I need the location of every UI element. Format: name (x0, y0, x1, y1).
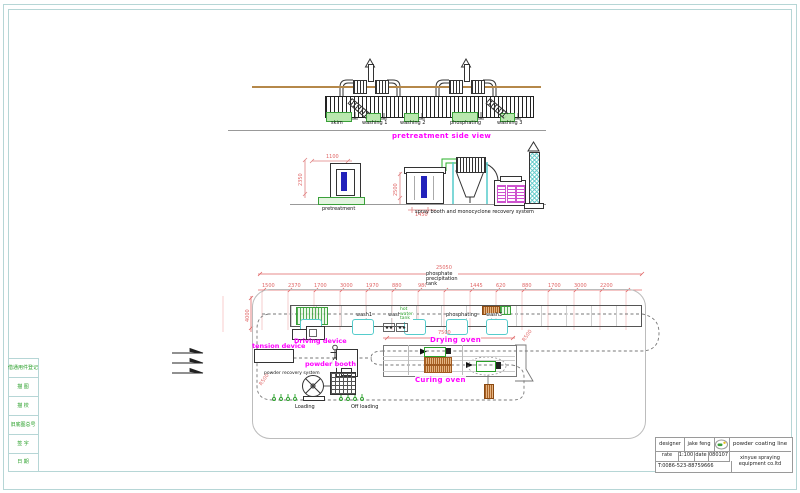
dim-text: 1445 (470, 284, 483, 289)
oven-heater-element (424, 365, 452, 373)
project-name-cell: powder coating line (729, 438, 791, 452)
exhaust-fan-box (449, 80, 463, 94)
pretreatment-blue-element (341, 172, 347, 191)
tank-label: washing 2 (400, 121, 425, 126)
burner-unit (476, 361, 496, 372)
booth-inner-line (414, 176, 415, 200)
tank-label: washing 3 (497, 121, 522, 126)
tank-label: skim (331, 121, 343, 126)
station-label: wash1 (356, 313, 372, 318)
company-cell: xinyue spraying equipment co.ltd (729, 451, 791, 472)
burner-end-cap (496, 362, 501, 369)
left-title-strip: 借通用件登记 描 图 描 校 旧底图总号 签 字 日 期 (8, 358, 39, 471)
dim-text: 2500 (394, 183, 399, 196)
phone-cell: T:0086-523-88759666 (656, 461, 732, 472)
station-label: phosphating (446, 313, 477, 318)
dim-text: 2200 (600, 284, 613, 289)
elevator-column (529, 152, 540, 208)
plan-tank (486, 319, 508, 335)
designer-label-cell: designer (656, 438, 685, 452)
strip-label: 描 校 (17, 404, 29, 409)
powder-recovery-label: powder recovery system (264, 371, 320, 376)
off-loading-label: Off loading (351, 405, 378, 410)
strip-label: 旧底图总号 (10, 423, 35, 428)
strip-label: 日 期 (17, 460, 29, 465)
left-dim-text: 4000 (246, 309, 251, 322)
side-view-title: pretreatment side view (392, 132, 491, 140)
exhaust-stack-pipe (464, 64, 470, 82)
oven-duct-stub (484, 384, 494, 399)
fan-base (303, 396, 325, 401)
strip-row: 日 期 (8, 454, 38, 471)
note-line: tank (426, 282, 458, 287)
loading-label: Loading (295, 405, 315, 410)
dim-text: 1500 (262, 284, 275, 289)
burner-end-cap (446, 348, 451, 354)
strip-row: 签 字 (8, 435, 38, 454)
filter-cartridge (507, 185, 516, 203)
pump-box (396, 323, 408, 332)
phosphate-note: phosphate precipitation tank (426, 272, 458, 287)
spray-booth-blue-element (421, 176, 427, 198)
dim-text: 2350 (299, 173, 304, 186)
tank-label: phosphating (450, 121, 481, 126)
dim-text: 2370 (288, 284, 301, 289)
dim-text: 3000 (340, 284, 353, 289)
oven-heater-element (424, 357, 452, 365)
dim-text: 1970 (366, 284, 379, 289)
note-line: tank (400, 317, 413, 322)
filter-grid (330, 372, 356, 395)
dim-text: 1700 (548, 284, 561, 289)
tank-label: washing 1 (362, 121, 387, 126)
company-line: equipment co.ltd (739, 462, 781, 468)
rail-beam (252, 86, 541, 88)
dim-text: 880 (522, 284, 532, 289)
oven-divider (462, 345, 463, 375)
strip-row: 描 校 (8, 397, 38, 416)
oven-divider (408, 345, 409, 375)
spray-system-label: spray booth and monocyclone recovery sys… (415, 210, 534, 215)
exhaust-fan-box (375, 80, 389, 94)
exhaust-stack-pipe (368, 64, 374, 82)
dim-text: 3000 (574, 284, 587, 289)
burner-unit (424, 347, 446, 357)
driving-device-inner (309, 329, 317, 337)
exhaust-fan-box (471, 80, 485, 94)
cyclone-top (456, 157, 486, 173)
strip-row: 旧底图总号 (8, 416, 38, 435)
pretreatment-base (318, 197, 365, 205)
tension-device-box (254, 349, 294, 363)
drying-oven-label: Drying oven (430, 336, 481, 344)
hot-water-tank-note: hot water tank (400, 308, 413, 322)
strip-label: 签 字 (17, 442, 29, 447)
powder-booth-label: powder booth (305, 360, 356, 368)
title-block: designer jake feng powder coating line r… (655, 437, 793, 473)
strip-row: 借通用件登记 (8, 359, 38, 378)
ground-line (228, 130, 546, 131)
logo-cell (714, 438, 730, 452)
strip-label: 描 图 (17, 385, 29, 390)
curing-oven-label: Curing oven (415, 376, 466, 384)
dim-text: 620 (496, 284, 506, 289)
pump-box (383, 323, 395, 332)
exhaust-fan-box (353, 80, 367, 94)
cad-sheet: 借通用件登记 描 图 描 校 旧底图总号 签 字 日 期 designer ja… (0, 0, 800, 493)
filter-cartridge (516, 185, 525, 203)
station-label: wash3 (486, 313, 502, 318)
dim-text: 880 (392, 284, 402, 289)
designer-value-cell: jake feng (684, 438, 715, 452)
strip-label: 借通用件登记 (8, 366, 38, 371)
filter-cartridge (497, 185, 506, 203)
booth-inner-line (433, 176, 434, 200)
pretreatment-label: pretreatment (322, 207, 355, 212)
company-logo-icon (714, 438, 729, 451)
plan-tank (352, 319, 374, 335)
dim-text: 1700 (314, 284, 327, 289)
filter-unit-top (500, 176, 522, 182)
dim-text: 1100 (326, 155, 339, 160)
strip-row: 描 图 (8, 378, 38, 397)
